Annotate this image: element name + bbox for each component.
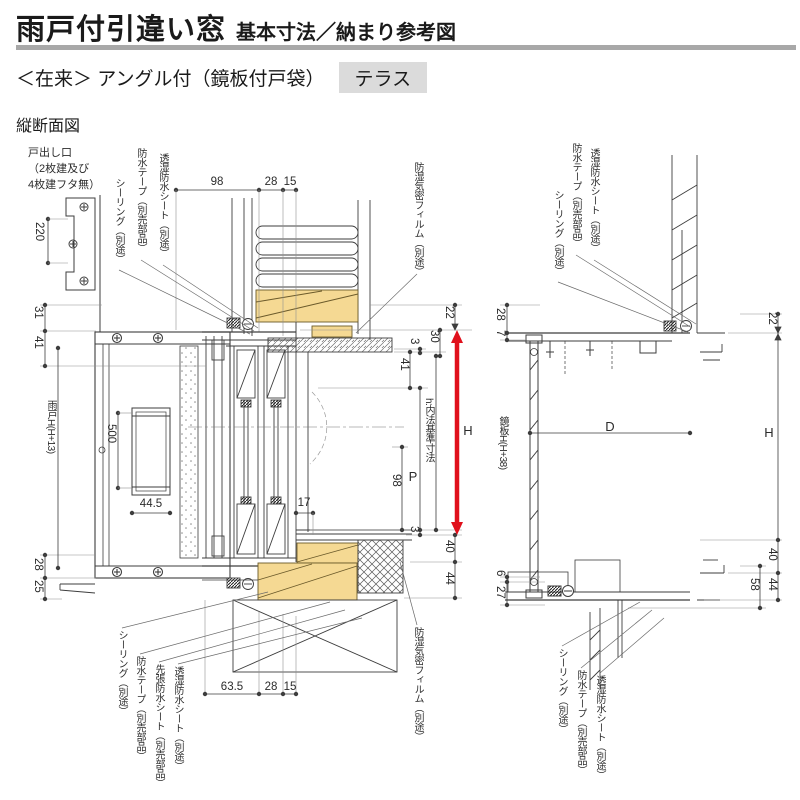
dim-top-28: 28 [265,177,278,189]
dim-right-40: 40 [442,540,454,553]
foundation [233,600,397,672]
callout-pre-applied-sheet-bottom-left: 先張防水シート（別売部品） [153,664,163,788]
callout-breathable-sheet-top-right: 透湿防水シート（別途） [588,148,598,253]
dim-rright-H: H [764,426,773,439]
window-frame-sashes [188,322,404,566]
dim-panel-height: 鏡板H(H+38) [497,416,507,470]
callout-waterproof-tape-bottom-right: 防水テープ（別売部品） [575,670,585,775]
dim-rright-44: 44 [765,578,777,591]
right-leaders [558,255,696,673]
dim-left-41: 41 [31,336,43,349]
height-arrow [451,330,463,535]
callout-sealing-bottom-right: シーリング（別途） [556,648,566,734]
dim-rright-58: 58 [747,578,759,591]
shutter-case-section [505,333,690,600]
dim-right-98: 98 [389,474,401,487]
door-outlet-bracket [66,195,100,332]
callout-waterproof-tape-bottom-left: 防水テープ（別売部品） [134,656,144,761]
dim-rleft-7: 7 [493,330,505,336]
dim-rright-22: 22 [765,312,777,325]
callout-waterproof-tape-top-right: 防水テープ（別売部品） [570,143,580,248]
callout-vapor-film-top-left: 防湿気密フィルム（別途） [412,162,422,276]
dim-rright-40: 40 [765,548,777,561]
dim-handle-500: 500 [104,424,116,443]
callout-sealing-bottom-left: シーリング（別途） [116,630,126,716]
dim-handle-44-5: 44.5 [140,499,162,511]
dim-right-P: P [409,470,418,483]
dim-right-drawing [500,303,782,610]
dim-left-25: 25 [31,580,43,593]
dim-rleft-28: 28 [493,308,505,321]
dim-right-41: 41 [397,358,409,371]
callout-vapor-film-bottom-left: 防湿気密フィルム（別途） [412,627,422,741]
catalog-page: { "header": { "title": "雨戸付引違い窓", "subti… [0,0,800,800]
dim-depth-D: D [605,420,614,433]
dim-right-30: 30 [427,330,439,343]
dim-top-15: 15 [284,177,297,189]
callout-sealing-top-right: シーリング（別途） [552,190,562,276]
dim-right-3b: 3 [407,526,419,532]
callout-breathable-sheet-bottom-left: 透湿防水シート（別途） [172,666,182,771]
dim-rleft-6: 6 [493,570,505,576]
dim-right-22: 22 [442,306,454,319]
dim-bottom-28: 28 [265,682,278,694]
door-outlet-note-line2: （2枚建及び [28,164,89,175]
shutter-box [95,332,230,578]
sill-area [60,530,412,600]
dim-left-28: 28 [31,558,43,571]
right-lower-wall [590,333,725,690]
dim-mid-17: 17 [298,498,311,510]
dim-bottom-15: 15 [284,682,297,694]
dim-bracket-220: 220 [32,222,44,241]
dim-right-H: H [463,424,472,437]
dim-bracket-220 [46,217,68,265]
shutter-handle [132,408,170,495]
dim-top-98: 98 [211,177,224,189]
callout-sealing-top-left: シーリング（別途） [113,178,123,264]
door-outlet-note-line3: 4枚建フタ無） [28,180,100,191]
dim-rleft-27: 27 [493,586,505,599]
dim-bottom-63-5: 63.5 [221,682,243,694]
dim-shutter-height: 雨戸H(H+13) [45,400,55,454]
dim-left-31: 31 [31,306,43,319]
callout-waterproof-tape-top-left: 防水テープ（別売部品） [135,148,145,253]
door-outlet-note-line1: 戸出し口 [28,148,72,159]
dim-inner-standard: h:内法基準寸法 [423,398,433,462]
dim-right-3a: 3 [407,338,419,344]
callout-breathable-sheet-bottom-right: 透湿防水シート（別途） [594,675,604,780]
dim-right-44: 44 [442,572,454,585]
right-wall-stud [664,155,697,333]
callout-breathable-sheet-top-left: 透湿防水シート（別途） [157,153,167,258]
